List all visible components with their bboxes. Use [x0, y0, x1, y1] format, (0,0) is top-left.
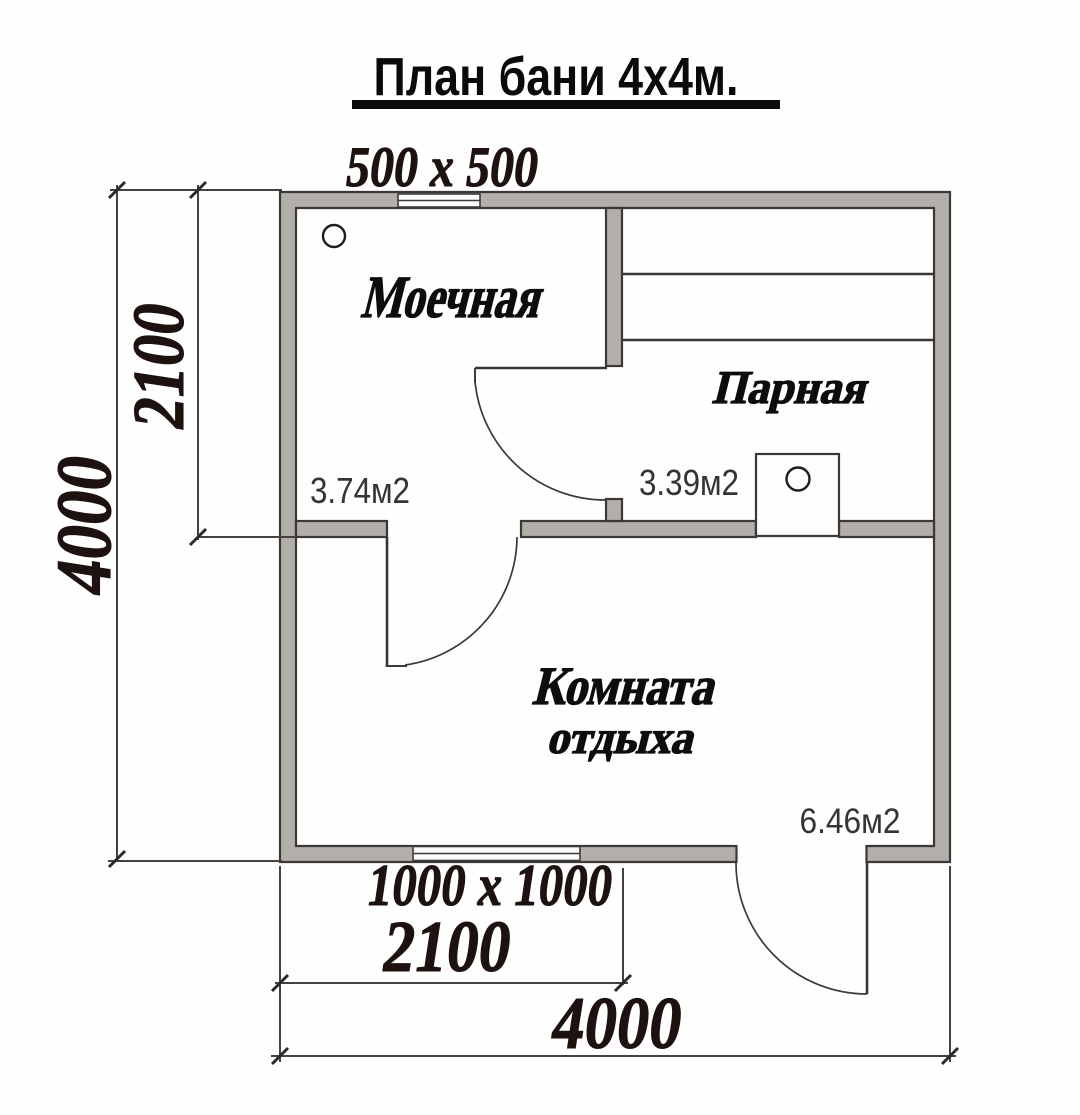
svg-text:4000: 4000	[551, 983, 682, 1065]
svg-text:500 x 500: 500 x 500	[346, 136, 538, 199]
svg-text:Моечная: Моечная	[357, 265, 551, 331]
svg-text:3.39м2: 3.39м2	[639, 462, 739, 503]
svg-text:отдыха: отдыха	[543, 712, 702, 764]
svg-text:Комната: Комната	[529, 656, 725, 716]
svg-text:Парная: Парная	[709, 362, 875, 414]
svg-text:3.74м2: 3.74м2	[310, 470, 410, 511]
svg-text:2100: 2100	[118, 304, 199, 430]
svg-text:4000: 4000	[40, 456, 127, 596]
svg-text:2100: 2100	[383, 906, 511, 987]
svg-text:План бани 4х4м.: План бани 4х4м.	[374, 47, 739, 107]
svg-text:6.46м2: 6.46м2	[800, 802, 901, 841]
